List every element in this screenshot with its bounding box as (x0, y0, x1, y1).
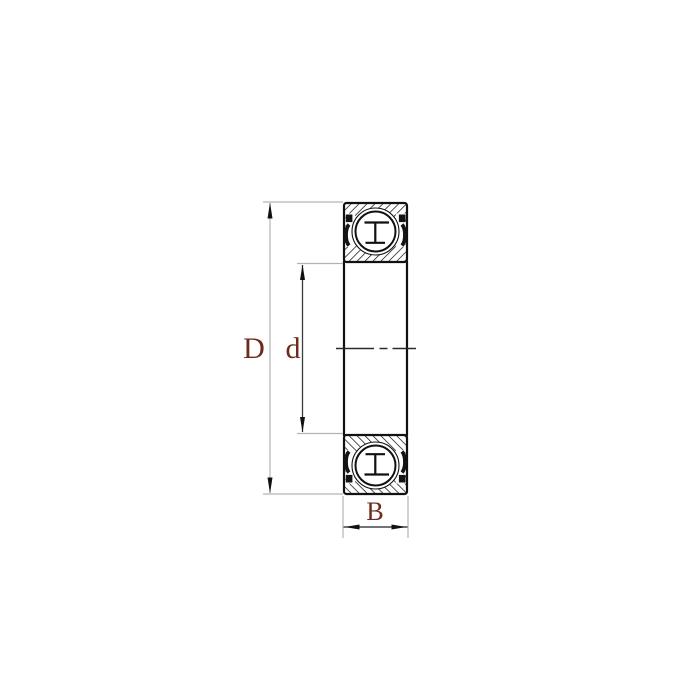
bearing-diagram-canvas: D d B (0, 0, 700, 700)
arrow-up-icon (268, 203, 273, 219)
arrow-up-icon (300, 265, 305, 281)
dimension-B: B (343, 496, 408, 538)
bearing-bottom-section (344, 435, 407, 494)
dimension-d: d (286, 264, 344, 434)
arrow-down-icon (268, 478, 273, 494)
width-label: B (366, 497, 383, 526)
bearing-cross-section-drawing: D d B (0, 0, 700, 700)
outer-diameter-label: D (243, 332, 265, 365)
arrow-left-icon (345, 525, 360, 530)
bearing-top-section (344, 203, 407, 262)
bore-diameter-label: d (286, 332, 301, 365)
arrow-down-icon (300, 417, 305, 433)
arrow-right-icon (392, 525, 407, 530)
